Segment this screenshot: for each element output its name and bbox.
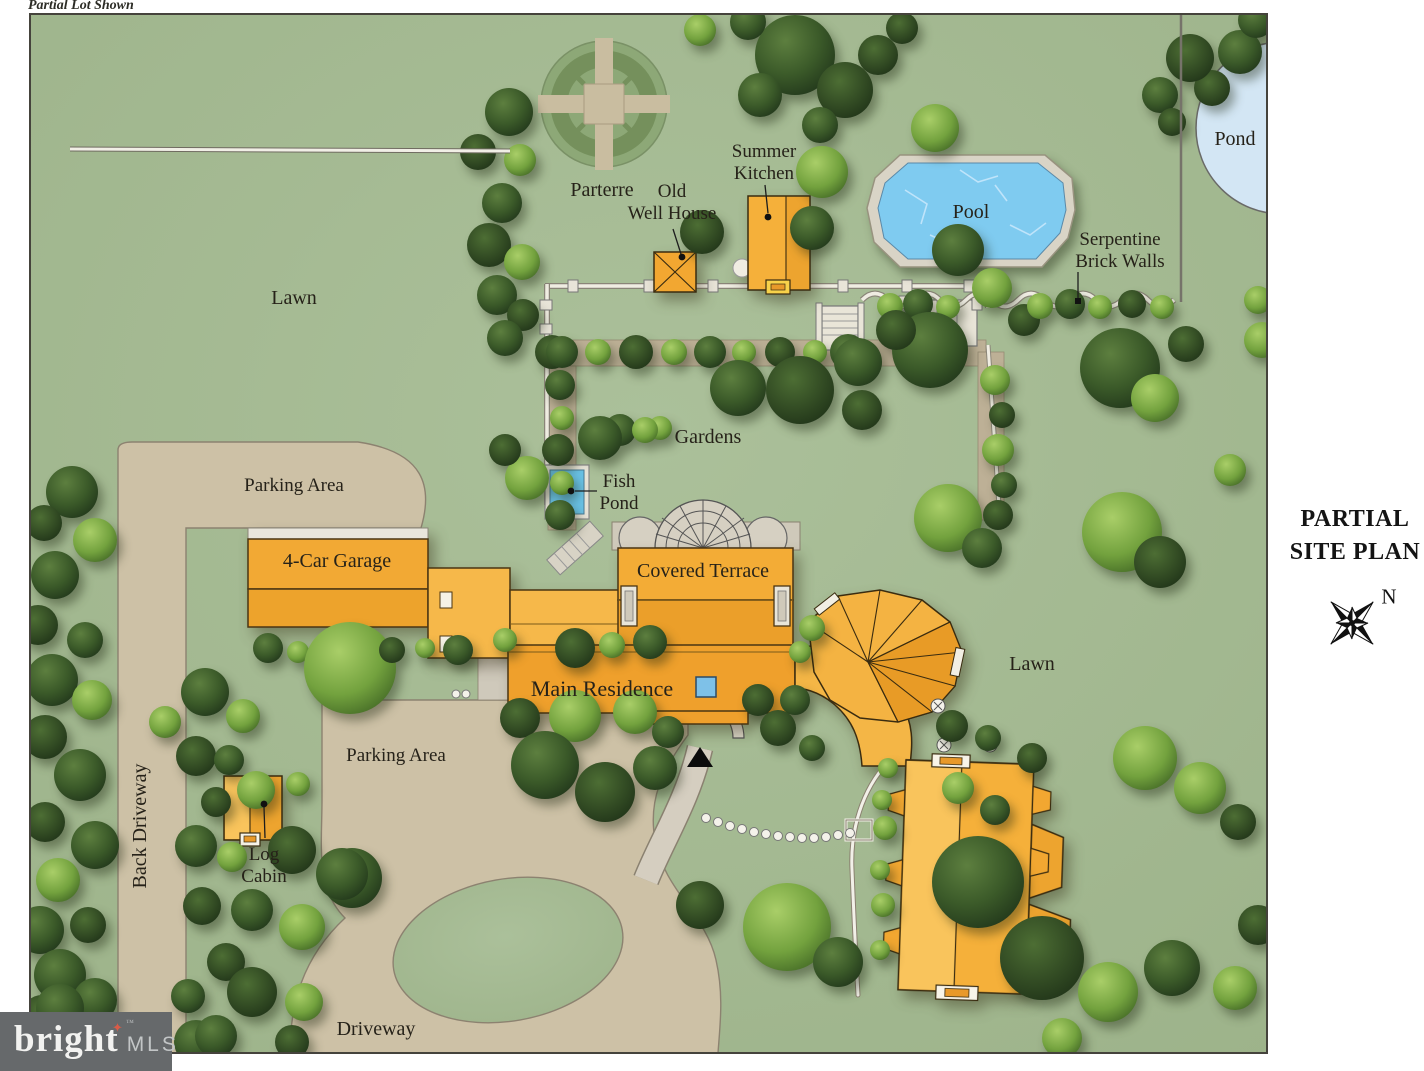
site-plan-title-line2: SITE PLAN xyxy=(1285,536,1424,569)
label-old-well-house-line2: Well House xyxy=(628,203,717,225)
site-plan-page: Partial Lot Shown Parterre Old Well Hous… xyxy=(0,0,1424,1071)
label-summer-kitchen-line1: Summer xyxy=(732,141,796,163)
label-main-residence: Main Residence xyxy=(531,678,673,700)
label-parking-area-top: Parking Area xyxy=(244,475,344,497)
label-serpentine-line1: Serpentine xyxy=(1075,229,1164,251)
label-serpentine-line2: Brick Walls xyxy=(1075,251,1164,273)
label-log-cabin: Log Cabin xyxy=(241,844,286,888)
label-summer-kitchen-line2: Kitchen xyxy=(732,163,796,185)
brand-logo: bright ✦ ™ MLS xyxy=(0,1012,172,1071)
label-old-well-house: Old Well House xyxy=(628,181,717,225)
label-fish-pond-line2: Pond xyxy=(599,493,638,515)
label-pond: Pond xyxy=(1214,128,1255,150)
brand-trademark: ™ xyxy=(126,1018,134,1027)
label-pool: Pool xyxy=(953,201,990,223)
brand-logo-text: bright xyxy=(14,1018,119,1061)
label-lawn-left: Lawn xyxy=(271,287,317,309)
brand-star-icon: ✦ xyxy=(112,1020,123,1036)
four-car-garage-building xyxy=(248,528,428,627)
site-plan-title-line1: PARTIAL xyxy=(1285,503,1424,536)
label-serpentine-brick-walls: Serpentine Brick Walls xyxy=(1075,229,1164,273)
site-plan-title: PARTIAL SITE PLAN xyxy=(1285,503,1424,569)
partial-lot-annotation: Partial Lot Shown xyxy=(28,0,134,14)
north-label: N xyxy=(1381,585,1396,610)
label-four-car-garage: 4-Car Garage xyxy=(283,550,391,572)
label-fish-pond-line1: Fish xyxy=(599,471,638,493)
label-parking-area-bottom: Parking Area xyxy=(346,745,446,767)
site-plan-map xyxy=(0,0,1424,1071)
label-log-cabin-line2: Cabin xyxy=(241,866,286,888)
label-fish-pond: Fish Pond xyxy=(599,471,638,515)
label-covered-terrace: Covered Terrace xyxy=(637,560,769,582)
skylight xyxy=(696,677,716,697)
label-gardens: Gardens xyxy=(675,426,742,448)
label-back-driveway: Back Driveway xyxy=(129,764,151,889)
label-parterre: Parterre xyxy=(570,179,633,201)
label-summer-kitchen: Summer Kitchen xyxy=(732,141,796,185)
label-log-cabin-line1: Log xyxy=(241,844,286,866)
label-old-well-house-line1: Old xyxy=(628,181,717,203)
brand-logo-suffix: MLS xyxy=(127,1033,179,1057)
label-driveway: Driveway xyxy=(337,1018,416,1040)
label-lawn-right: Lawn xyxy=(1009,653,1055,675)
old-well-house-building xyxy=(654,252,696,292)
